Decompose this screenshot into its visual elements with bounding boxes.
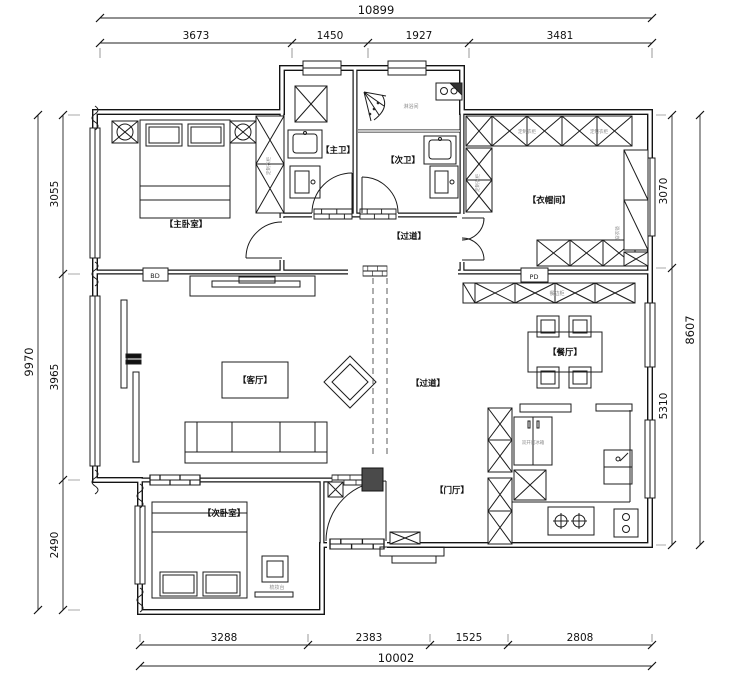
nightstand [230,121,256,143]
bd-duct-label: BD [150,272,159,280]
wardrobe-label: 定制衣柜 [590,128,608,135]
window [645,303,655,367]
dim-bottom-seg1: 3288 [211,632,238,644]
dressing-table-label: 梳妆台 [269,584,284,591]
dining-chair [569,316,591,337]
window [90,128,100,258]
shower-spray-icon [364,92,386,121]
shoe-cabinet [328,482,343,497]
wardrobe-label: 定制衣柜 [474,174,481,192]
wardrobe-label: 定制衣柜 [518,128,536,135]
threshold-hatch [363,266,387,276]
dim-left-seg3: 2490 [49,532,61,559]
window [90,296,100,466]
vanity-sink [288,130,322,158]
sideboard-label: 餐边柜 [549,290,564,297]
dim-bottom-seg2: 2383 [356,632,383,644]
walls [95,68,650,612]
room-label-master-bath: 【主卫】 [321,145,355,156]
master-bedroom-door [246,222,282,258]
room-label-master-bedroom: 【主卧室】 [165,219,208,230]
dim-right-seg1: 3070 [658,178,670,205]
room-label-living: 【客厅】 [238,375,272,386]
cloakroom [466,116,648,266]
room-label-second-bath: 【次卫】 [386,155,420,166]
room-label-dining: 【餐厅】 [548,347,582,358]
window [388,61,426,75]
dimension-left: 9970 3055 3965 2490 [22,111,80,614]
second-bath-door [362,177,398,213]
dining-chair [537,367,559,388]
floor-plan-page: 【主卧室】 【主卫】 【次卫】 【衣帽间】 【过道】 【客厅】 【餐厅】 【过道… [0,0,740,700]
dim-left-seg1: 3055 [49,181,61,208]
living-room [121,268,387,463]
window [135,506,145,584]
washing-machine [295,86,327,122]
dim-bottom-total: 10002 [378,651,415,665]
shower-mixer [436,83,462,100]
bed-master [140,120,230,218]
dim-right-total: 8607 [683,315,697,344]
sofa [185,422,327,463]
dishwasher [514,470,546,500]
dining-room [463,268,635,388]
dim-top-seg3: 1927 [406,30,433,42]
master-bath-door [312,173,352,213]
tv-cabinet [190,276,315,296]
balcony-slider [121,300,141,462]
dim-bottom-seg4: 2808 [567,632,594,644]
window [303,61,341,75]
toilet [290,166,320,198]
wardrobe-cabinets [466,116,635,266]
mirror-cabinet [624,150,648,266]
mirror-label: 穿衣镜 [614,226,621,240]
dim-left-seg2: 3965 [49,364,61,391]
toilet [430,166,458,198]
threshold-hatch [150,475,200,485]
dim-top-seg4: 3481 [547,30,574,42]
threshold-hatch [360,209,396,219]
tall-cabinets [488,408,512,544]
door-thresholds [150,209,396,549]
dining-chair [537,316,559,337]
nightstand [112,121,138,143]
entry-steps [380,547,444,563]
dimension-top: 10899 3673 1450 1927 3481 [96,3,656,58]
dimension-bottom: 3288 2383 1525 2808 10002 [136,632,656,670]
dim-bottom-seg3: 1525 [456,632,483,644]
room-label-second-bedroom: 【次卧室】 [203,508,246,519]
kitchen [488,404,638,544]
room-label-corridor-north: 【过道】 [392,231,426,242]
stove [548,507,594,535]
dim-top-seg1: 3673 [183,30,210,42]
wardrobe-label: 定制衣柜 [265,157,272,175]
threshold-hatch [314,209,352,219]
dim-top-seg2: 1450 [317,30,344,42]
upper-cabinet [520,404,632,412]
vanity-sink [424,136,456,164]
dimension-right: 8607 3070 5310 [656,111,704,549]
room-label-cloakroom: 【衣帽间】 [528,195,571,206]
entry-cabinet [390,532,420,544]
water-heater [614,509,638,537]
fridge-label: 双开门冰箱 [522,439,545,446]
pd-duct-label: PD [530,273,539,281]
dim-top-total: 10899 [358,3,395,17]
floor-plan-drawing: 【主卧室】 【主卫】 【次卫】 【衣帽间】 【过道】 【客厅】 【餐厅】 【过道… [0,0,740,700]
sink [604,450,632,484]
threshold-hatch [330,539,384,549]
dim-left-total: 9970 [22,347,36,376]
room-label-corridor-south: 【过道】 [411,378,445,389]
room-label-foyer: 【门厅】 [435,485,469,496]
floor-lamp-diamond [324,356,376,408]
structural-column [362,468,383,491]
shower-room-label: 淋浴间 [403,103,418,110]
window [645,420,655,498]
master-bath [288,86,327,198]
dim-right-seg2: 5310 [658,393,670,420]
master-bedroom [112,116,284,218]
dining-chair [569,367,591,388]
